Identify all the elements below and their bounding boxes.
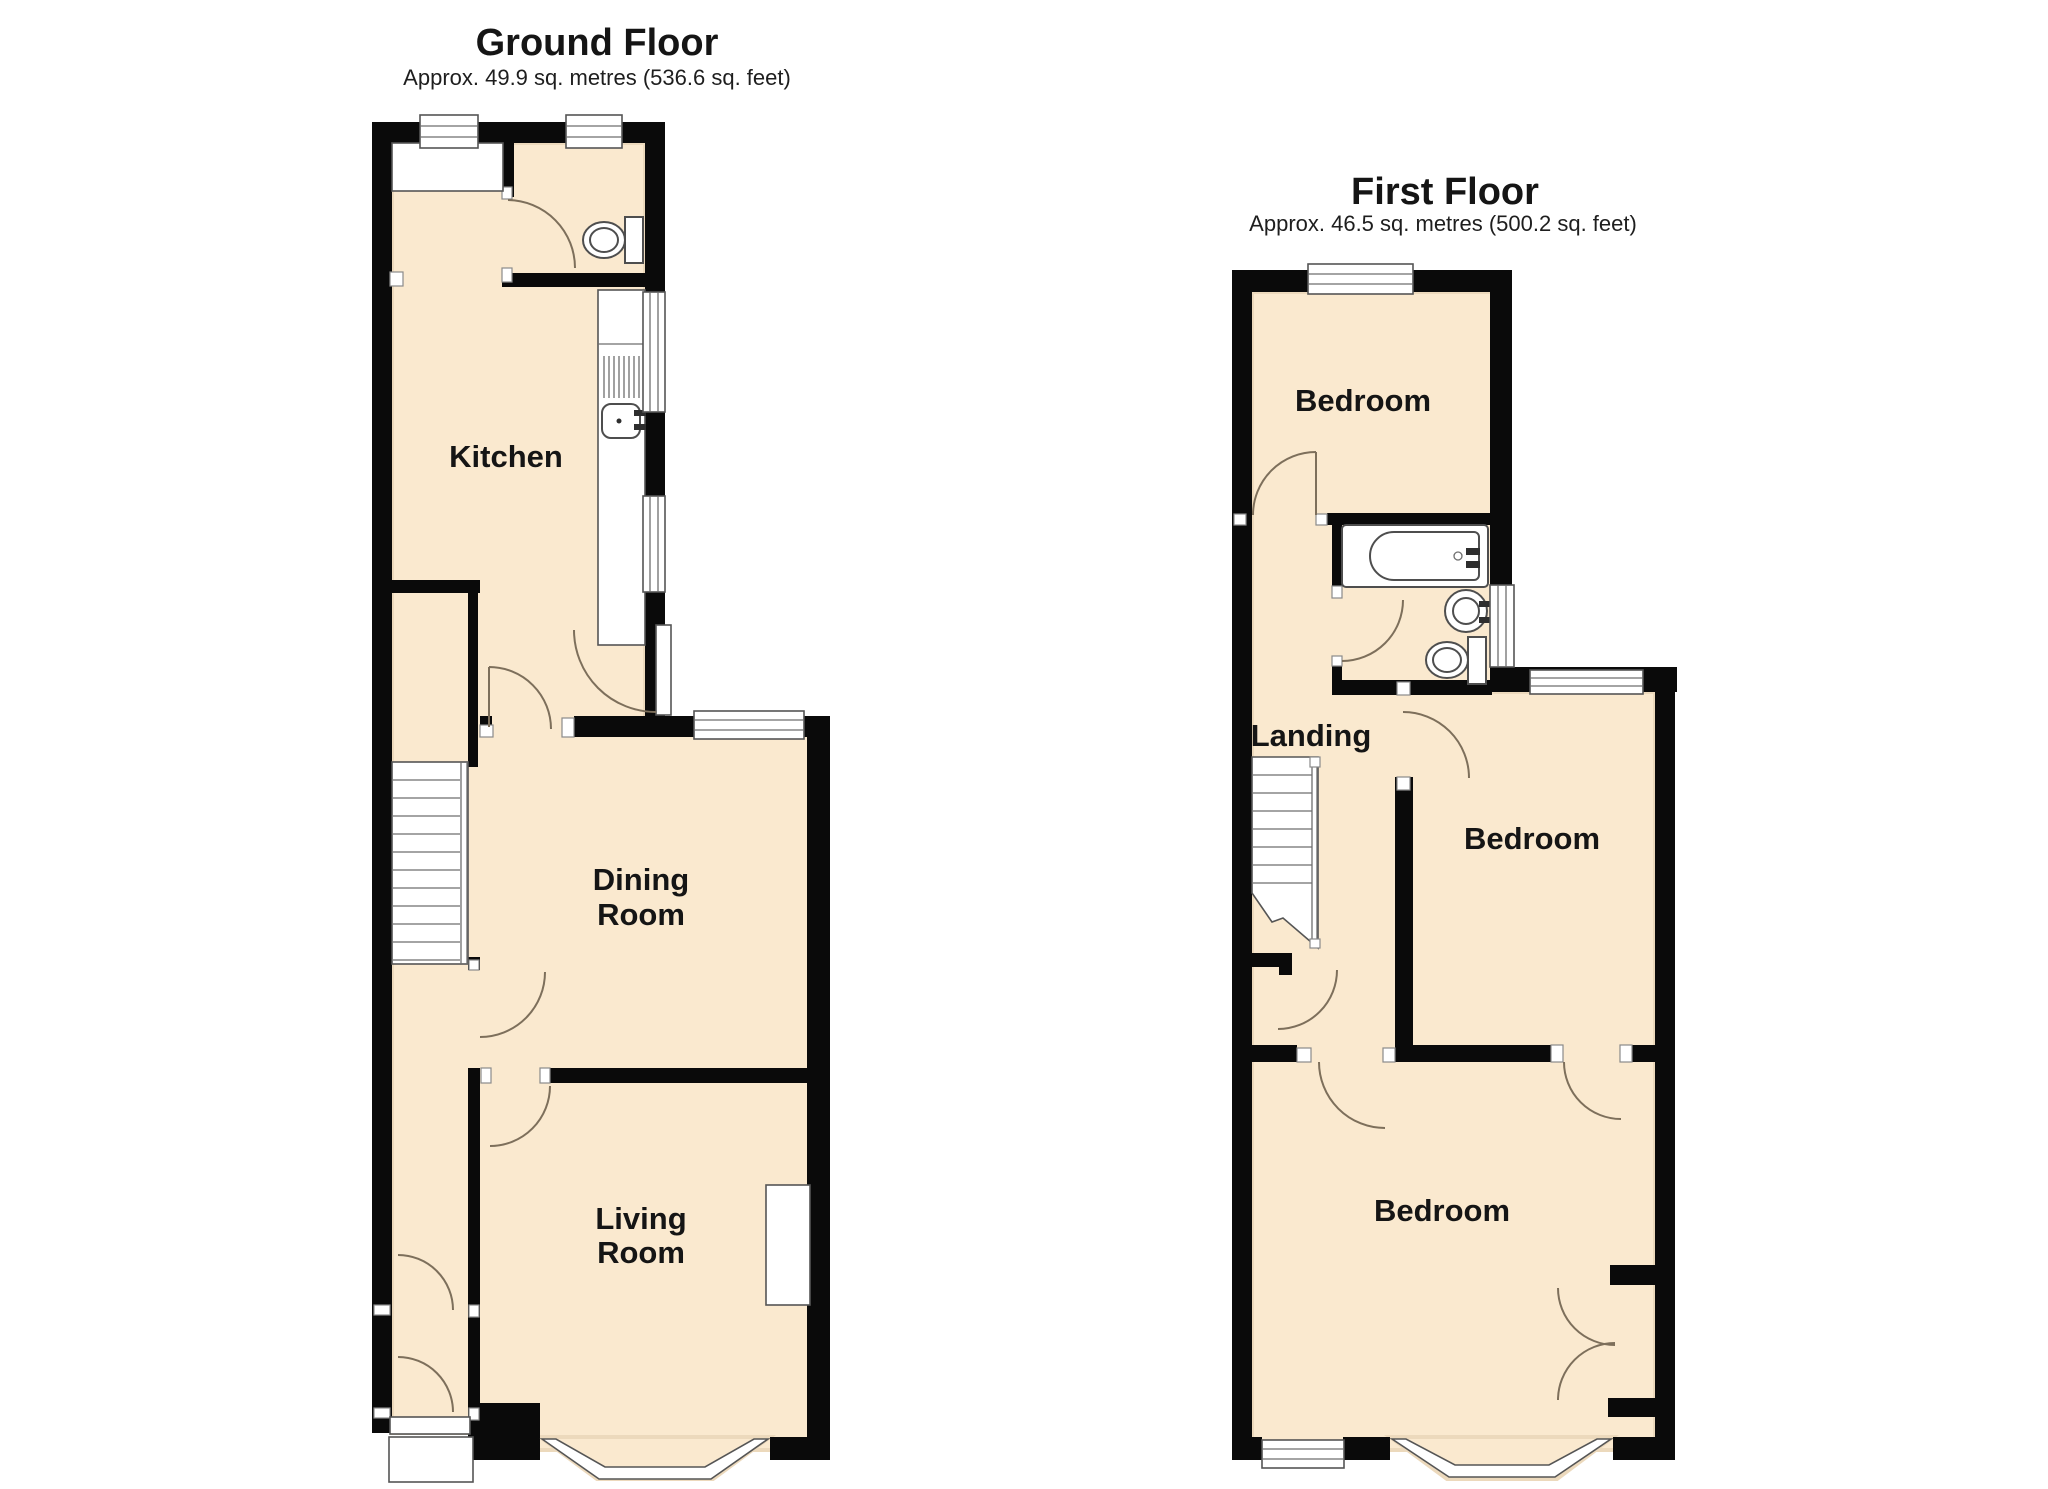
gf-back-door [656, 625, 671, 715]
bedroom-front-label: Bedroom [1295, 383, 1431, 418]
window-icon [420, 115, 478, 148]
ground-floor-subtitle: Approx. 49.9 sq. metres (536.6 sq. feet) [403, 65, 791, 90]
svg-text:Room: Room [597, 1235, 685, 1270]
gf-entrance-vestibule [392, 143, 503, 191]
gf-front-door-step [390, 1417, 470, 1434]
window-icon [1262, 1440, 1344, 1468]
window-icon [643, 292, 665, 412]
bedroom-rear-label: Bedroom [1374, 1193, 1510, 1228]
living-room-label: Living Room [595, 1201, 686, 1270]
svg-text:Living: Living [595, 1201, 686, 1236]
floorplan-page: Ground Floor Approx. 49.9 sq. metres (53… [0, 0, 2048, 1489]
first-floor-plan: First Floor Approx. 46.5 sq. metres (500… [1232, 171, 1677, 1479]
window-icon [1308, 264, 1413, 294]
window-icon [694, 711, 804, 739]
window-icon [643, 496, 665, 592]
floorplan-drawing: Ground Floor Approx. 49.9 sq. metres (53… [0, 0, 2048, 1489]
dining-room-label: Dining Room [593, 862, 689, 932]
gf-fireplace [766, 1185, 810, 1305]
window-icon [566, 115, 622, 148]
window-icon [1490, 585, 1514, 667]
window-icon [1530, 670, 1643, 694]
bathtub-icon [1342, 525, 1488, 587]
ground-floor-title: Ground Floor [476, 22, 719, 64]
gf-staircase [392, 762, 468, 964]
gf-kitchen-counter [598, 290, 646, 645]
svg-text:Dining: Dining [593, 862, 689, 897]
svg-text:Room: Room [597, 897, 685, 932]
gf-porch [389, 1437, 473, 1482]
landing-label: Landing [1251, 718, 1372, 753]
ground-floor-plan: Ground Floor Approx. 49.9 sq. metres (53… [372, 22, 830, 1482]
kitchen-sink-icon [602, 404, 646, 438]
kitchen-label: Kitchen [449, 439, 563, 474]
bedroom-middle-label: Bedroom [1464, 821, 1600, 856]
first-floor-title: First Floor [1351, 171, 1539, 213]
first-floor-subtitle: Approx. 46.5 sq. metres (500.2 sq. feet) [1249, 211, 1637, 236]
